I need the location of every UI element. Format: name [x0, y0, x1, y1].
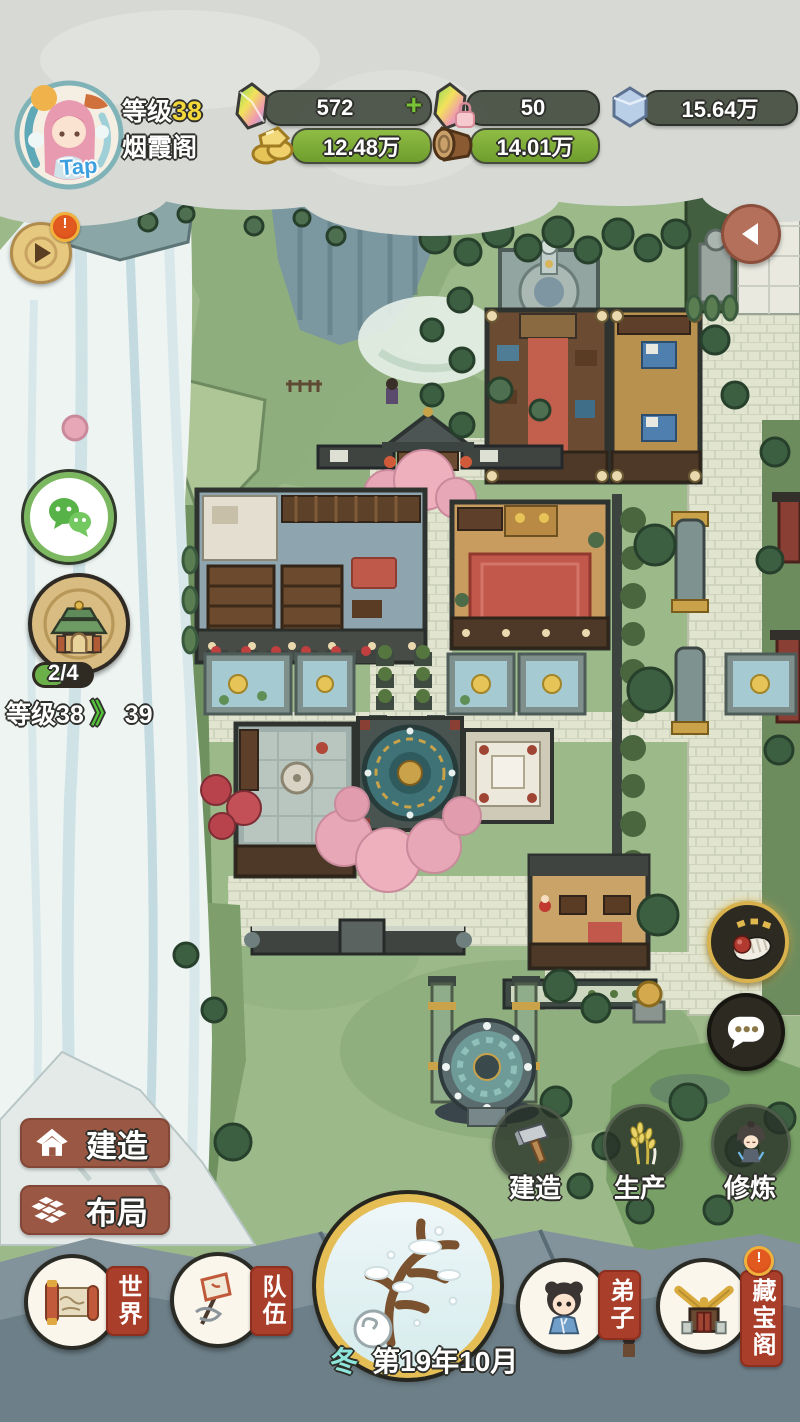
nav-treasure-tag: 藏宝阁 — [740, 1270, 783, 1367]
wechat-button[interactable] — [24, 472, 114, 562]
gold-bar[interactable]: 12.48万 — [291, 128, 432, 164]
draw-pearl-button[interactable] — [707, 901, 789, 983]
meditator-icon — [724, 1117, 778, 1171]
tap-label: Tap — [59, 153, 98, 182]
back-button[interactable] — [721, 204, 781, 264]
level-value: 38 — [172, 96, 202, 126]
building-teahouse[interactable] — [530, 856, 648, 968]
wood-icon — [428, 120, 478, 166]
level-label: 等级 — [122, 98, 172, 126]
build-label: 建造 — [86, 1121, 148, 1166]
chat-bubble-icon — [721, 1007, 771, 1057]
player-avatar[interactable]: Tap — [14, 80, 124, 190]
nav-world-tag: 世界 — [106, 1266, 149, 1336]
quick-build-label: 建造 — [485, 1168, 585, 1205]
hand-pearl-icon — [717, 911, 779, 973]
gold-value: 12.48万 — [323, 130, 400, 162]
building-bedroom[interactable] — [611, 310, 701, 482]
nav-treasure-button[interactable] — [656, 1258, 752, 1354]
house-icon — [30, 1123, 74, 1163]
hammer-icon — [506, 1118, 558, 1170]
wood-bar[interactable]: 14.01万 — [470, 128, 600, 164]
stone-bar[interactable]: 15.64万 — [642, 90, 798, 126]
game-date: 冬 第19年10月 — [330, 1340, 518, 1380]
build-button[interactable]: 建造 — [20, 1118, 170, 1168]
back-arrow-icon — [738, 221, 764, 247]
play-alert-badge: ! — [50, 212, 80, 242]
quick-produce-label: 生产 — [590, 1168, 690, 1205]
gold-icon — [248, 120, 296, 166]
season-label: 冬 — [330, 1340, 358, 1380]
game-screen: Tap 等级38 烟霞阁 572 + 50 15.64万 12.48万 14.0… — [0, 0, 800, 1422]
layout-button[interactable]: 布局 — [20, 1185, 170, 1235]
team-flag-icon — [186, 1268, 250, 1332]
nav-team-tag: 队伍 — [250, 1266, 293, 1336]
level-progress: 等级38 》 39 — [6, 692, 153, 731]
treasure-pavilion-icon — [671, 1273, 737, 1339]
world-map-icon — [40, 1270, 104, 1334]
date-label: 第19年10月 — [372, 1340, 518, 1380]
layout-label: 布局 — [86, 1188, 148, 1233]
add-gems-button[interactable]: + — [406, 89, 422, 121]
stone-icon — [610, 86, 650, 128]
play-icon — [24, 236, 58, 270]
sect-progress-badge: 2/4 — [32, 662, 94, 688]
building-dining-hall[interactable] — [452, 502, 608, 648]
winter-tree-icon — [333, 1211, 483, 1361]
stone-value: 15.64万 — [681, 92, 758, 124]
wheat-icon — [617, 1118, 669, 1170]
building-library[interactable] — [197, 490, 425, 662]
gem-locked-bar[interactable]: 50 — [466, 90, 600, 126]
wechat-icon — [42, 490, 96, 544]
gold-ornament — [634, 982, 664, 1022]
sect-name: 烟霞阁 — [122, 128, 197, 164]
sect-building-icon — [41, 586, 117, 662]
chat-button[interactable] — [707, 993, 785, 1071]
layout-grid-icon — [30, 1191, 74, 1229]
gem-value: 572 — [317, 95, 354, 121]
sect-upgrade-button[interactable] — [28, 573, 130, 675]
gem-locked-value: 50 — [521, 95, 545, 121]
quick-cultivate-label: 修炼 — [700, 1168, 800, 1205]
player-level: 等级38 — [122, 92, 202, 128]
treasure-alert-badge: ! — [744, 1246, 774, 1276]
disciple-girl-icon — [531, 1273, 597, 1339]
nav-disciple-tag: 弟子 — [598, 1270, 641, 1340]
level-arrow-icon: 》 — [91, 699, 118, 729]
wood-value: 14.01万 — [496, 130, 573, 162]
